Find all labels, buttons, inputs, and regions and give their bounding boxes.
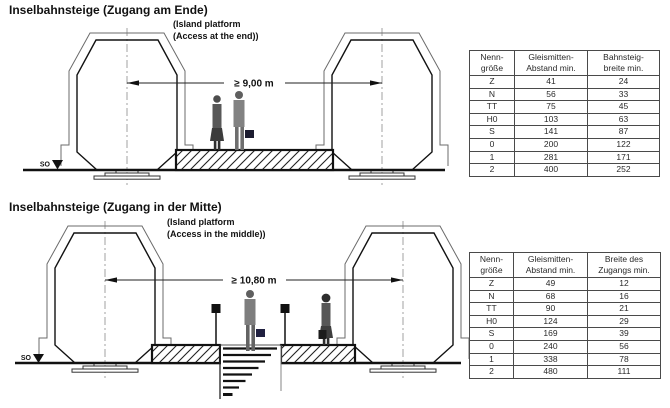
table-cell: Z — [470, 76, 515, 89]
table-cell: 103 — [515, 113, 588, 126]
island-platform-right — [281, 345, 355, 363]
dimension-label: ≥ 10,80 m — [232, 276, 277, 287]
table-cell: 480 — [514, 366, 588, 379]
section1-subtitle: (Island platform (Access at the end)) — [173, 19, 259, 42]
section1-title: Inselbahnsteige (Zugang am Ende) — [9, 3, 208, 17]
table-cell: 0 — [470, 340, 514, 353]
arrow-right-icon — [391, 277, 403, 282]
table-row: 1281171 — [470, 151, 660, 164]
table-cell: 49 — [514, 278, 588, 291]
table-row: TT9021 — [470, 303, 661, 316]
table-cell: TT — [470, 303, 514, 316]
table-row: TT7545 — [470, 101, 660, 114]
table-row: H010363 — [470, 113, 660, 126]
table-cell: 338 — [514, 353, 588, 366]
table-row: H012429 — [470, 315, 661, 328]
table-cell: 171 — [588, 151, 660, 164]
table-cell: 2 — [470, 366, 514, 379]
table-cell: H0 — [470, 113, 515, 126]
dimension-label: ≥ 9,00 m — [234, 79, 274, 90]
access-width-table: Nenn- größeGleismitten- Abstand min.Brei… — [469, 252, 661, 379]
table-cell: 41 — [515, 76, 588, 89]
table-cell: 1 — [470, 353, 514, 366]
table-cell: H0 — [470, 315, 514, 328]
arrow-left-icon — [127, 80, 139, 85]
table-cell: 252 — [588, 164, 660, 177]
column-header: Gleismitten- Abstand min. — [514, 253, 588, 278]
vehicle-gauge-right — [337, 221, 469, 381]
table-cell: 75 — [515, 101, 588, 114]
table-cell: 0 — [470, 138, 515, 151]
rail-top-datum: SO — [21, 354, 44, 363]
diagram-access-in-middle: ≥ 10,80 m SO — [15, 221, 469, 399]
table-cell: 240 — [514, 340, 588, 353]
passenger-woman — [319, 294, 334, 345]
arrow-right-icon — [370, 80, 382, 85]
column-header: Nenn- größe — [470, 253, 514, 278]
table-row: Z4124 — [470, 76, 660, 89]
table-cell: 56 — [588, 340, 661, 353]
datum-triangle-icon — [33, 354, 44, 363]
post-head-icon — [281, 304, 290, 313]
table-row: Z4912 — [470, 278, 661, 291]
page: ≥ 9,00 m SO — [0, 0, 670, 408]
table-cell: 141 — [515, 126, 588, 139]
section2-subtitle: (Island platform (Access in the middle)) — [167, 217, 266, 240]
table-row: 024056 — [470, 340, 661, 353]
header-row: Nenn- größeGleismitten- Abstand min.Bahn… — [470, 51, 660, 76]
table-cell: 63 — [588, 113, 660, 126]
table-cell: S — [470, 126, 515, 139]
table-cell: 2 — [470, 164, 515, 177]
dimension-line: ≥ 10,80 m — [105, 276, 403, 287]
table-cell: 29 — [588, 315, 661, 328]
table-cell: 124 — [514, 315, 588, 328]
table-cell: 12 — [588, 278, 661, 291]
stairwell — [220, 345, 281, 399]
rail-top-datum: SO — [40, 160, 63, 170]
table-cell: 87 — [588, 126, 660, 139]
datum-label: SO — [21, 355, 32, 362]
platform-width-table: Nenn- größeGleismitten- Abstand min.Bahn… — [469, 50, 660, 177]
table-cell: 400 — [515, 164, 588, 177]
briefcase-icon — [245, 130, 254, 138]
arrow-left-icon — [105, 277, 117, 282]
table-cell: 122 — [588, 138, 660, 151]
column-header: Breite des Zugangs min. — [588, 253, 661, 278]
table-cell: 1 — [470, 151, 515, 164]
table-row: S14187 — [470, 126, 660, 139]
table-row: 2480111 — [470, 366, 661, 379]
table-cell: 68 — [514, 290, 588, 303]
table-cell: 78 — [588, 353, 661, 366]
section2-title: Inselbahnsteige (Zugang in der Mitte) — [9, 200, 222, 214]
table-cell: S — [470, 328, 514, 341]
table-cell: 16 — [588, 290, 661, 303]
passenger-woman — [210, 95, 224, 150]
passenger-man — [234, 91, 255, 150]
table-cell: 169 — [514, 328, 588, 341]
table-row: 0200122 — [470, 138, 660, 151]
table-row: N6816 — [470, 290, 661, 303]
passenger-man-on-stairs — [245, 290, 266, 351]
island-platform-left — [152, 345, 220, 363]
dimension-line: ≥ 9,00 m — [127, 79, 382, 90]
table-row: 2400252 — [470, 164, 660, 177]
table-cell: 24 — [588, 76, 660, 89]
briefcase-icon — [256, 329, 265, 337]
table-cell: 56 — [515, 88, 588, 101]
column-header: Nenn- größe — [470, 51, 515, 76]
post-head-icon — [212, 304, 221, 313]
table-cell: 39 — [588, 328, 661, 341]
table-cell: 111 — [588, 366, 661, 379]
datum-label: SO — [40, 162, 51, 169]
table-cell: 21 — [588, 303, 661, 316]
diagram-access-at-end: ≥ 9,00 m SO — [23, 28, 448, 188]
table-row: 133878 — [470, 353, 661, 366]
handbag-icon — [319, 330, 327, 339]
header-row: Nenn- größeGleismitten- Abstand min.Brei… — [470, 253, 661, 278]
table-cell: N — [470, 290, 514, 303]
table-cell: Z — [470, 278, 514, 291]
column-header: Bahnsteig- breite min. — [588, 51, 660, 76]
table-cell: 281 — [515, 151, 588, 164]
table-row: N5633 — [470, 88, 660, 101]
column-header: Gleismitten- Abstand min. — [515, 51, 588, 76]
table-row: S16939 — [470, 328, 661, 341]
table-cell: 200 — [515, 138, 588, 151]
vehicle-gauge-right — [316, 28, 448, 188]
vehicle-gauge-left — [61, 28, 193, 188]
table-cell: N — [470, 88, 515, 101]
island-platform — [176, 150, 333, 170]
table-cell: TT — [470, 101, 515, 114]
table-cell: 90 — [514, 303, 588, 316]
table-cell: 33 — [588, 88, 660, 101]
table-cell: 45 — [588, 101, 660, 114]
